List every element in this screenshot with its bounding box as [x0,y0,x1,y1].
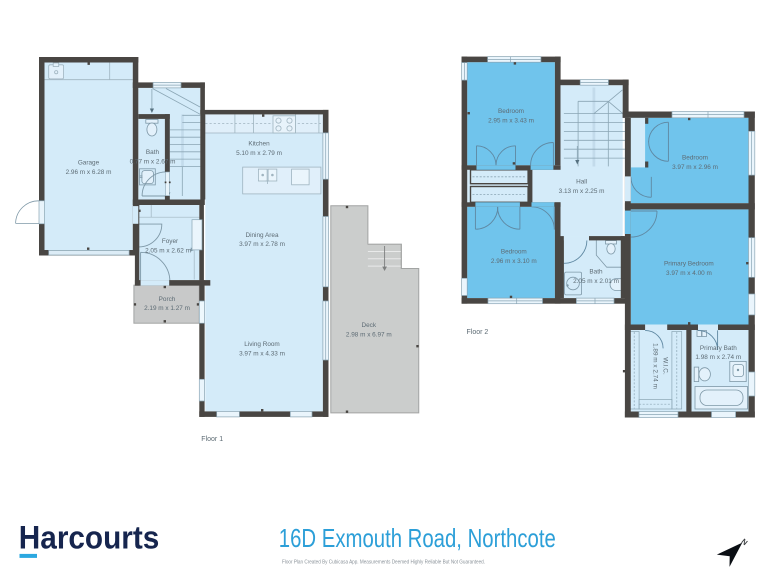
svg-text:Primary Bath: Primary Bath [700,345,737,352]
svg-text:Porch: Porch [159,296,176,303]
svg-text:Bedroom: Bedroom [501,248,527,255]
svg-text:N: N [740,537,750,547]
svg-text:Living Room: Living Room [244,341,280,348]
svg-text:3.97 m x 4.00 m: 3.97 m x 4.00 m [666,270,712,277]
svg-text:2.98 m x 6.97 m: 2.98 m x 6.97 m [346,331,392,338]
svg-text:2.96 m x 3.10 m: 2.96 m x 3.10 m [491,258,537,265]
svg-text:3.97 m x 2.78 m: 3.97 m x 2.78 m [239,241,285,248]
svg-text:Bedroom: Bedroom [682,155,708,162]
svg-text:2.05 m x 2.01 m: 2.05 m x 2.01 m [573,278,619,285]
svg-text:5.10 m x 2.79 m: 5.10 m x 2.79 m [236,150,282,157]
svg-text:1.98 m x 2.74 m: 1.98 m x 2.74 m [695,354,741,361]
svg-text:Kitchen: Kitchen [248,141,270,148]
svg-text:2.96 m x 6.28 m: 2.96 m x 6.28 m [66,169,112,176]
svg-text:W.I.C.: W.I.C. [661,357,668,375]
svg-text:2.95 m x 3.43 m: 2.95 m x 3.43 m [488,118,534,125]
svg-text:3.13 m x 2.25 m: 3.13 m x 2.25 m [559,188,605,195]
svg-text:1.89 m x 2.74 m: 1.89 m x 2.74 m [652,343,659,389]
svg-text:Harcourts: Harcourts [19,520,160,556]
svg-text:0.77 m x 2.67 m: 0.77 m x 2.67 m [130,158,176,165]
svg-text:Bath: Bath [146,149,160,156]
svg-text:2.19 m x 1.27 m: 2.19 m x 1.27 m [144,305,190,312]
svg-text:Bath: Bath [589,269,603,276]
svg-text:Bedroom: Bedroom [498,108,524,115]
svg-text:Hall: Hall [576,179,587,186]
svg-text:Floor Plan Created By Cubicasa: Floor Plan Created By Cubicasa App. Meas… [282,560,485,566]
svg-text:3.97 m x 4.33 m: 3.97 m x 4.33 m [239,350,285,357]
svg-text:Floor 2: Floor 2 [467,329,489,336]
svg-text:Deck: Deck [362,322,377,329]
svg-text:3.97 m x 2.96 m: 3.97 m x 2.96 m [672,164,718,171]
svg-text:16D Exmouth Road, Northcote: 16D Exmouth Road, Northcote [279,523,556,553]
svg-text:Dining Area: Dining Area [245,232,278,239]
svg-text:Primary Bedroom: Primary Bedroom [664,261,714,268]
svg-text:Foyer: Foyer [162,238,179,245]
svg-text:Garage: Garage [78,160,100,167]
svg-text:Floor 1: Floor 1 [201,436,223,443]
svg-text:2.05 m x 2.62 m: 2.05 m x 2.62 m [145,248,191,255]
